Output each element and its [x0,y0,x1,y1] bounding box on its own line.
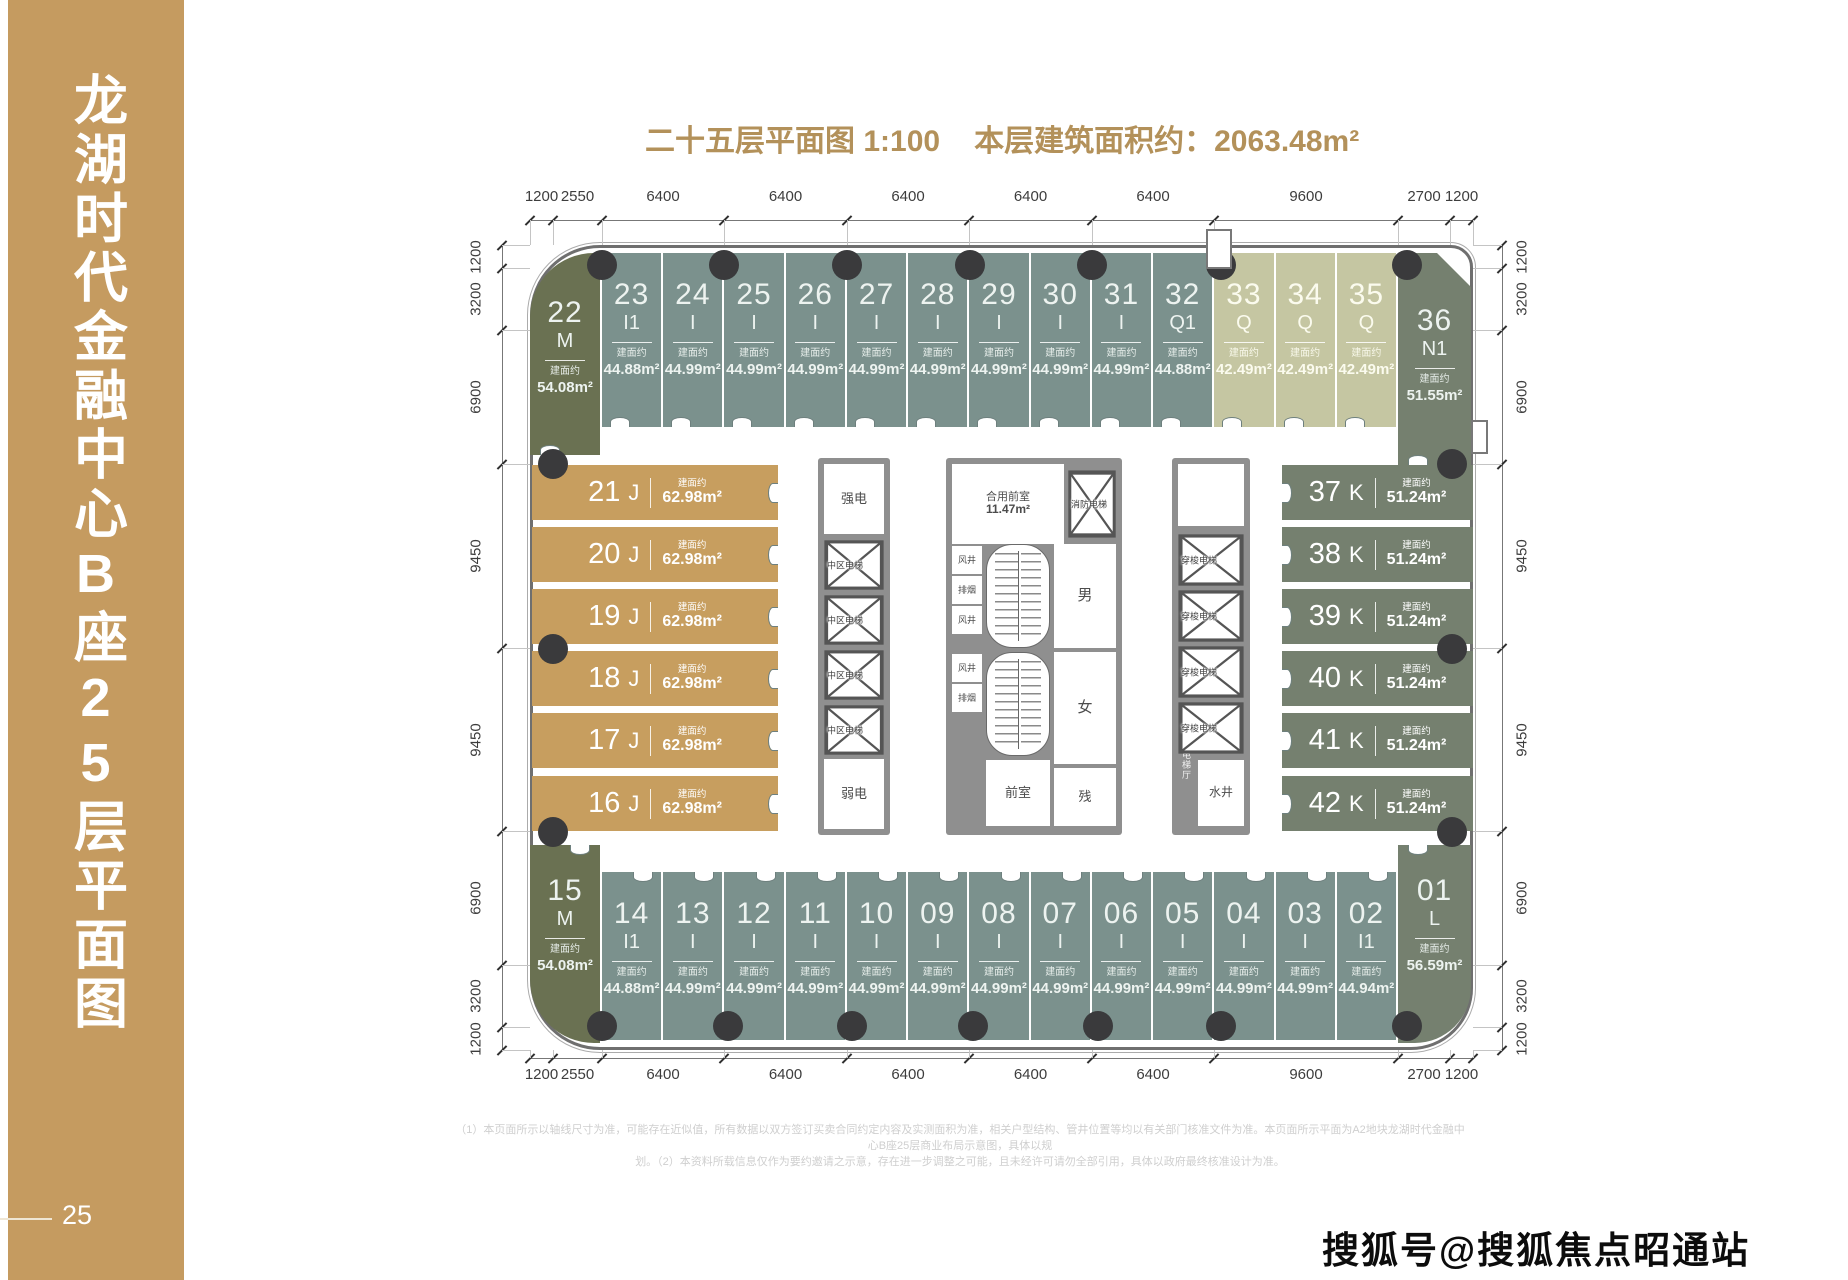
strong-electric-label: 强电 [841,492,867,507]
unit-21: 21J建面约62.98m² [532,465,778,520]
shuttle-elevator: 穿梭电梯 [1178,534,1244,586]
unit-27: 27I建面约44.99m² [847,253,906,427]
dimension-value: 6400 [769,1066,802,1083]
unit-36: 36N1建面约51.55m² [1398,253,1471,465]
door-arc [1282,794,1292,814]
dimension-value: 6900 [1514,881,1531,914]
column-dot [587,1011,617,1041]
disclaimer-note: （1）本页面所示以轴线尺寸为准，可能存在近似值，所有数据以双方签订买卖合同约定内… [450,1122,1470,1170]
dimension-extension [969,220,970,245]
shaft-room: 风井 [952,654,982,682]
column-dot [1437,634,1467,664]
mens-wc-label: 男 [1077,587,1092,604]
dimension-value: 2550 [561,188,594,205]
sidebar-vertical-title: 龙湖时代金融中心B座25层平面图 [8,70,184,1035]
dimension-value: 9450 [468,723,485,756]
door-arc [768,483,778,503]
plan-title: 二十五层平面图 1:100 [645,116,940,160]
unit-09: 09I建面约44.99m² [908,872,967,1040]
door-arc [1062,872,1082,882]
weak-electric-label: 弱电 [841,787,867,802]
dimension-value: 1200 [1514,240,1531,273]
door-arc [1345,417,1365,427]
door-arc [1282,731,1292,751]
dimension-value: 6400 [646,1066,679,1083]
unit-19: 19J建面约62.98m² [532,589,778,644]
dimension-extension [502,1027,530,1028]
stair-rail [1018,551,1021,641]
dimension-line [530,220,1473,221]
dimension-extension [502,245,530,246]
unit-34: 34Q建面约42.49m² [1276,253,1335,427]
dimension-value: 9450 [1514,723,1531,756]
unit-17: 17J建面约62.98m² [532,713,778,768]
unit-41: 41K建面约51.24m² [1282,713,1473,768]
shaft-room: 风井 [952,606,982,634]
unit-02: 02I1建面约44.94m² [1337,872,1396,1040]
dimension-extension [1398,220,1399,245]
door-arc [1100,417,1120,427]
dimension-extension [1450,1050,1451,1058]
dimension-extension [602,220,603,245]
door-arc [756,872,776,882]
water-shaft-label: 水井 [1209,786,1233,800]
door-arc [1408,845,1428,855]
unit-16: 16J建面约62.98m² [532,776,778,831]
elevator-label: 穿梭电梯 [1181,666,1217,679]
door-arc [878,872,898,882]
vestibule-room: 前室 [986,760,1050,826]
elevator-label: 消防电梯 [1071,498,1107,511]
dimension-extension [553,1050,554,1058]
door-arc [916,417,936,427]
door-arc [1039,417,1059,427]
unit-35: 35Q建面约42.49m² [1337,253,1396,427]
dimension-extension [1214,1050,1215,1058]
dimension-extension [1092,220,1093,245]
column-dot [1437,817,1467,847]
shuttle-elevator: 穿梭电梯 [1178,702,1244,754]
door-arc [1282,545,1292,565]
dimension-line [530,1058,1473,1059]
dimension-value: 6900 [468,881,485,914]
door-arc [817,872,837,882]
page-number-line [0,1218,52,1220]
dimension-extension [1473,268,1502,269]
dimension-extension [1473,1050,1474,1058]
dimension-value: 1200 [1445,188,1478,205]
door-arc [1282,669,1292,689]
door-arc [694,872,714,882]
shaft-room: 排烟 [952,684,982,712]
dimension-value: 6400 [1136,1066,1169,1083]
dimension-value: 6400 [1014,1066,1047,1083]
water-shaft-room: 水井 [1198,760,1244,826]
dimension-extension [1473,648,1502,649]
dimension-extension [502,965,530,966]
door-arc [1307,872,1327,882]
dimension-extension [1473,1027,1502,1028]
elevator-bank-left: 强电 弱电 中区电梯中区电梯中区电梯中区电梯 [818,458,890,835]
unit-18: 18J建面约62.98m² [532,651,778,706]
unit-13: 13I建面约44.99m² [663,872,722,1040]
dimension-value: 9600 [1289,1066,1322,1083]
door-arc [855,417,875,427]
header: 二十五层平面图 1:100 本层建筑面积约：2063.48m² [645,116,1359,160]
fire-elevator: 消防电梯 [1068,470,1116,538]
column-dot [1077,250,1107,280]
dimension-extension [1473,464,1502,465]
unit-29: 29I建面约44.99m² [969,253,1028,427]
dimension-extension [1473,1050,1502,1051]
core-stair-wc: 合用前室 11.47m² 男 女 前室 残 消防电梯风井排烟风井风井排烟 [946,458,1122,835]
unit-30: 30I建面约44.99m² [1031,253,1090,427]
page-number: 25 [62,1200,92,1231]
door-arc [768,731,778,751]
door-arc [570,845,590,855]
dimension-extension [602,1050,603,1058]
unit-32: 32Q1建面约44.88m² [1153,253,1212,427]
dimension-value: 3200 [1514,979,1531,1012]
dimension-value: 6400 [1014,188,1047,205]
dimension-value: 2550 [561,1066,594,1083]
watermark: 搜狐号@搜狐焦点昭通站 [1322,1220,1750,1274]
dimension-value: 3200 [468,979,485,1012]
dimension-extension [502,1050,530,1051]
door-arc [1184,872,1204,882]
dimension-extension [502,648,530,649]
dimension-value: 6400 [1136,188,1169,205]
column-dot [837,1011,867,1041]
column-dot [1392,250,1422,280]
shaft-room: 排烟 [952,576,982,604]
shared-lobby-area: 11.47m² [986,503,1030,517]
unit-22: 22M建面约54.08m² [530,253,600,455]
unit-31: 31I建面约44.99m² [1092,253,1151,427]
disclaimer-line-1: （1）本页面所示以轴线尺寸为准，可能存在近似值，所有数据以双方签订买卖合同约定内… [450,1122,1470,1154]
dimension-value: 6400 [646,188,679,205]
door-arc [1001,872,1021,882]
door-arc [768,794,778,814]
column-dot [832,250,862,280]
shuttle-elevator: 穿梭电梯 [1178,646,1244,698]
elevator-label: 中区电梯 [827,614,863,627]
dimension-value: 1200 [468,240,485,273]
mid-zone-elevator: 中区电梯 [824,595,884,645]
unit-26: 26I建面约44.99m² [786,253,845,427]
dimension-extension [847,220,848,245]
door-arc [732,417,752,427]
dimension-extension [502,268,530,269]
door-arc [633,872,653,882]
unit-05: 05I建面约44.99m² [1153,872,1212,1040]
shuttle-elevator: 穿梭电梯 [1178,590,1244,642]
dimension-extension [502,464,530,465]
column-dot [1206,1011,1236,1041]
column-dot [955,250,985,280]
dimension-extension [1473,220,1474,245]
door-arc [1282,483,1292,503]
dimension-extension [502,831,530,832]
column-dot [958,1011,988,1041]
unit-11: 11I建面约44.99m² [786,872,845,1040]
dimension-extension [969,1050,970,1058]
unit-15: 15M建面约54.08m² [530,845,600,1043]
mid-zone-elevator: 中区电梯 [824,540,884,590]
elevator-lobby-room [1178,464,1244,526]
elevator-label: 穿梭电梯 [1181,610,1217,623]
dimension-value: 1200 [1445,1066,1478,1083]
womens-wc-room: 女 [1054,652,1116,764]
unit-23: 23I1建面约44.88m² [602,253,661,427]
stairwell-lower [986,652,1050,756]
wall-notch-top [1206,229,1232,269]
door-arc [1408,455,1428,465]
mid-zone-elevator: 中区电梯 [824,650,884,700]
dimension-extension [1092,1050,1093,1058]
unit-03: 03I建面约44.99m² [1276,872,1335,1040]
dimension-extension [1473,831,1502,832]
column-dot [587,250,617,280]
stair-rail [1018,659,1021,749]
column-dot [538,449,568,479]
shaft-room: 风井 [952,546,982,574]
disclaimer-line-2: 划。（2）本资料所载信息仅作为要约邀请之示意，存在进一步调整之可能，且未经许可请… [450,1154,1470,1170]
dimension-value: 3200 [1514,282,1531,315]
mid-zone-elevator: 中区电梯 [824,705,884,755]
unit-20: 20J建面约62.98m² [532,527,778,582]
wall-notch-right [1471,420,1488,454]
dimension-extension [553,220,554,245]
accessible-wc-room: 残 [1054,768,1116,826]
door-arc [610,417,630,427]
shared-lobby-room: 合用前室 11.47m² [952,464,1064,544]
dimension-value: 2700 [1407,188,1440,205]
dimension-value: 9600 [1289,188,1322,205]
elevator-label: 中区电梯 [827,724,863,737]
strong-electric-room: 强电 [824,464,884,534]
dimension-extension [530,220,531,245]
column-dot [1083,1011,1113,1041]
vestibule-label: 前室 [1005,786,1031,801]
dimension-value: 9450 [468,539,485,572]
door-arc [768,607,778,627]
floor-area-title: 本层建筑面积约：2063.48m² [974,116,1359,160]
door-arc [1123,872,1143,882]
elevator-bank-right: 电梯厅 水井 穿梭电梯穿梭电梯穿梭电梯穿梭电梯 [1172,458,1250,835]
door-arc [794,417,814,427]
dimension-value: 2700 [1407,1066,1440,1083]
column-dot [709,250,739,280]
dimension-extension [847,1050,848,1058]
elevator-label: 中区电梯 [827,669,863,682]
stairwell-upper [986,544,1050,648]
dimension-value: 6400 [891,188,924,205]
dimension-extension [1450,220,1451,245]
dimension-extension [530,1050,531,1058]
unit-07: 07I建面约44.99m² [1031,872,1090,1040]
door-arc [1246,872,1266,882]
column-dot [538,817,568,847]
dimension-value: 1200 [525,188,558,205]
door-arc [977,417,997,427]
dimension-extension [1473,245,1502,246]
dimension-value: 6900 [1514,380,1531,413]
dimension-extension [1473,965,1502,966]
door-arc [1284,417,1304,427]
dimension-value: 3200 [468,282,485,315]
dimension-value: 6400 [891,1066,924,1083]
elevator-label: 中区电梯 [827,559,863,572]
mens-wc-room: 男 [1054,544,1116,648]
elevator-label: 穿梭电梯 [1181,554,1217,567]
elevator-hall-label: 电梯厅 [1180,750,1193,780]
accessible-wc-label: 残 [1078,790,1091,805]
dimension-extension [1473,330,1502,331]
door-arc [939,872,959,882]
column-dot [538,634,568,664]
dimension-value: 1200 [468,1022,485,1055]
dimension-extension [1398,1050,1399,1058]
dimension-extension [724,1050,725,1058]
unit-25: 25I建面约44.99m² [724,253,783,427]
column-dot [713,1011,743,1041]
door-arc [1368,872,1388,882]
elevator-label: 穿梭电梯 [1181,722,1217,735]
column-dot [1392,1011,1422,1041]
womens-wc-label: 女 [1077,699,1092,716]
unit-24: 24I建面约44.99m² [663,253,722,427]
door-arc [1282,607,1292,627]
dimension-value: 9450 [1514,539,1531,572]
door-arc [768,669,778,689]
door-arc [1161,417,1181,427]
unit-28: 28I建面约44.99m² [908,253,967,427]
dimension-value: 6900 [468,380,485,413]
dimension-extension [502,330,530,331]
door-arc [671,417,691,427]
dimension-extension [724,220,725,245]
weak-electric-room: 弱电 [824,759,884,829]
dimension-value: 1200 [1514,1022,1531,1055]
dimension-value: 1200 [525,1066,558,1083]
dimension-value: 6400 [769,188,802,205]
unit-38: 38K建面约51.24m² [1282,527,1473,582]
column-dot [1437,449,1467,479]
door-arc [768,545,778,565]
door-arc [1222,417,1242,427]
